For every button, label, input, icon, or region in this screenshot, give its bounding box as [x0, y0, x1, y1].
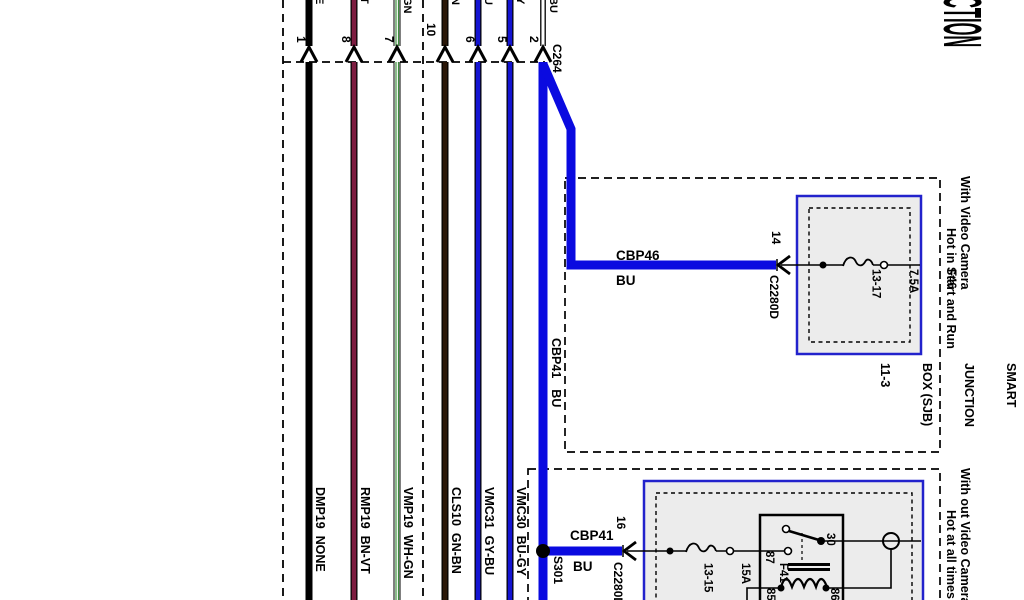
sjb-line-2: JUNCTION	[962, 363, 976, 427]
relay-pin-86: 86	[828, 588, 840, 600]
wire-label-cbp46: CBP46	[616, 248, 660, 263]
pin-label-5: 5	[495, 36, 509, 43]
wire-label-cls10: CLS10 GN-BN	[449, 487, 463, 574]
cbp41-circuit: CBP41	[549, 338, 563, 378]
pin-label-10: 10	[424, 23, 438, 36]
condition-without-video-camera: With out Video Camera	[957, 468, 972, 600]
pin-label-14: 14	[769, 231, 783, 244]
wire-label-cbp41: CBP41	[570, 528, 614, 543]
diagram-graphics	[0, 0, 1024, 600]
condition-hot-in-start-and-run: Hot in Start and Run	[943, 228, 958, 349]
connector-label-c2280d-1: C2280D	[767, 275, 781, 319]
top-fragment-cbp: BU	[547, 0, 559, 13]
top-fragment-vmp19: GN	[401, 0, 413, 14]
relay-switch-contact	[783, 526, 790, 533]
wire-color-cbp46: BU	[616, 273, 636, 288]
cbp41-color: BU	[549, 389, 563, 407]
wire-cbp46-branch	[543, 64, 776, 265]
wire-cbp41-horizontal	[536, 544, 622, 558]
component-label-sjb: SMART JUNCTION BOX (SJB) 11-3	[864, 363, 1024, 427]
relay-pin-87: 87	[763, 551, 775, 564]
page-title-fragment: CTION	[933, 0, 987, 47]
wire-label-vmc31: VMC31 GY-BU	[482, 487, 496, 575]
wire-feed-thin	[541, 0, 545, 46]
sjb-line-1: SMART	[1004, 363, 1018, 427]
pin-label-6: 6	[463, 36, 477, 43]
connector-arrows-c264	[301, 47, 551, 62]
top-fragment-cls10: N	[449, 0, 461, 5]
condition-with-video-camera: With Video Camera	[957, 176, 972, 290]
connector-label-c264: C264	[550, 44, 564, 73]
pin-label-7: 7	[382, 36, 396, 43]
pin-label-16: 16	[614, 516, 628, 529]
condition-hot-at-all-times: Hot at all times	[943, 510, 958, 599]
splice-s301-dot	[536, 544, 550, 558]
wiring-diagram-page: CTION 1 8 7 10 6 5 2 E T GN N U Y BU C26…	[0, 0, 1024, 600]
fuse-label-f41: F41 15A 13-15	[688, 563, 814, 592]
wire-label-cbp41-vertical: CBP41BU	[549, 338, 563, 407]
connector-label-c2280d-2: C2280D	[611, 562, 625, 600]
top-fragment-dmp19: E	[313, 0, 325, 4]
splice-label-s301: S301	[551, 556, 565, 584]
top-fragment-vmc31: U	[482, 0, 494, 5]
wire-color-cbp41: BU	[573, 559, 593, 574]
wire-label-vmp19: VMP19 WH-GN	[401, 487, 415, 579]
wire-label-dmp19: DMP19 NONE	[313, 487, 327, 572]
relay-87-terminal	[785, 548, 792, 555]
fuse-f46-grid: 13-17	[869, 269, 882, 298]
relay-pin-30: 30	[824, 533, 836, 546]
pin-label-2: 2	[527, 36, 541, 43]
pin-label-1: 1	[294, 36, 308, 43]
fuse-f41-name: F41	[776, 563, 789, 592]
wire-vmp19	[396, 0, 399, 600]
relay-pin-85: 85	[764, 588, 776, 600]
fuse-f46-rating: 7.5A	[907, 269, 920, 298]
top-fragment-vmc30: Y	[514, 0, 526, 4]
sjb-line-4: 11-3	[878, 363, 892, 427]
pin-label-8: 8	[339, 36, 353, 43]
wire-label-rmp19: RMP19 BN-VT	[358, 487, 372, 574]
wire-label-vmc30: VMC30 BU-GY	[514, 487, 528, 576]
top-fragment-rmp19: T	[358, 0, 370, 4]
fuse-f41-grid: 13-15	[701, 563, 714, 592]
fuse-f41-rating: 15A	[739, 563, 752, 592]
sjb-line-3: BOX (SJB)	[920, 363, 934, 427]
